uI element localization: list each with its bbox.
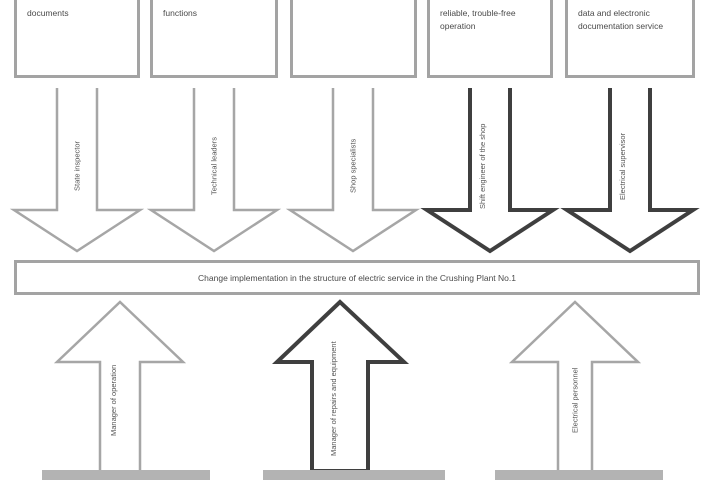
- top-box-label: documents: [27, 8, 69, 18]
- down-arrow-technical-leaders: Technical leaders: [149, 88, 279, 253]
- top-box-functions: functions: [150, 0, 278, 78]
- bottom-box-top-edge: [263, 470, 445, 480]
- top-box-empty: [290, 0, 417, 78]
- top-box-label: functions: [163, 8, 197, 18]
- bottom-box-top-edge: [42, 470, 210, 480]
- up-arrow-icon: [55, 300, 185, 480]
- central-box: Change implementation in the structure o…: [14, 260, 700, 295]
- down-arrow-state-inspector: State inspector: [12, 88, 142, 253]
- up-arrow-icon: [510, 300, 640, 480]
- down-arrow-shop-specialists: Shop specialists: [288, 88, 418, 253]
- down-arrow-electrical-supervisor: Electrical supervisor: [565, 88, 695, 253]
- down-arrow-icon: [425, 88, 555, 253]
- up-arrow-electrical-personnel: Electrical personnel: [510, 300, 640, 480]
- down-arrow-icon: [12, 88, 142, 253]
- up-arrow-manager-of-repairs: Manager of repairs and equipment: [273, 300, 408, 480]
- down-arrow-icon: [565, 88, 695, 253]
- top-box-label: reliable, trouble-free operation: [440, 8, 516, 31]
- central-box-label: Change implementation in the structure o…: [198, 273, 516, 283]
- top-box-documents: documents: [14, 0, 140, 78]
- top-box-documentation-service: data and electronic documentation servic…: [565, 0, 695, 78]
- down-arrow-icon: [288, 88, 418, 253]
- up-arrow-manager-of-operation: Manager of operation: [55, 300, 185, 480]
- top-box-label: data and electronic documentation servic…: [578, 8, 663, 31]
- top-box-operation: reliable, trouble-free operation: [427, 0, 553, 78]
- down-arrow-shift-engineer: Shift engineer of the shop: [425, 88, 555, 253]
- diagram-canvas: documents functions reliable, trouble-fr…: [0, 0, 720, 480]
- down-arrow-icon: [149, 88, 279, 253]
- up-arrow-icon: [273, 300, 408, 480]
- bottom-box-top-edge: [495, 470, 663, 480]
